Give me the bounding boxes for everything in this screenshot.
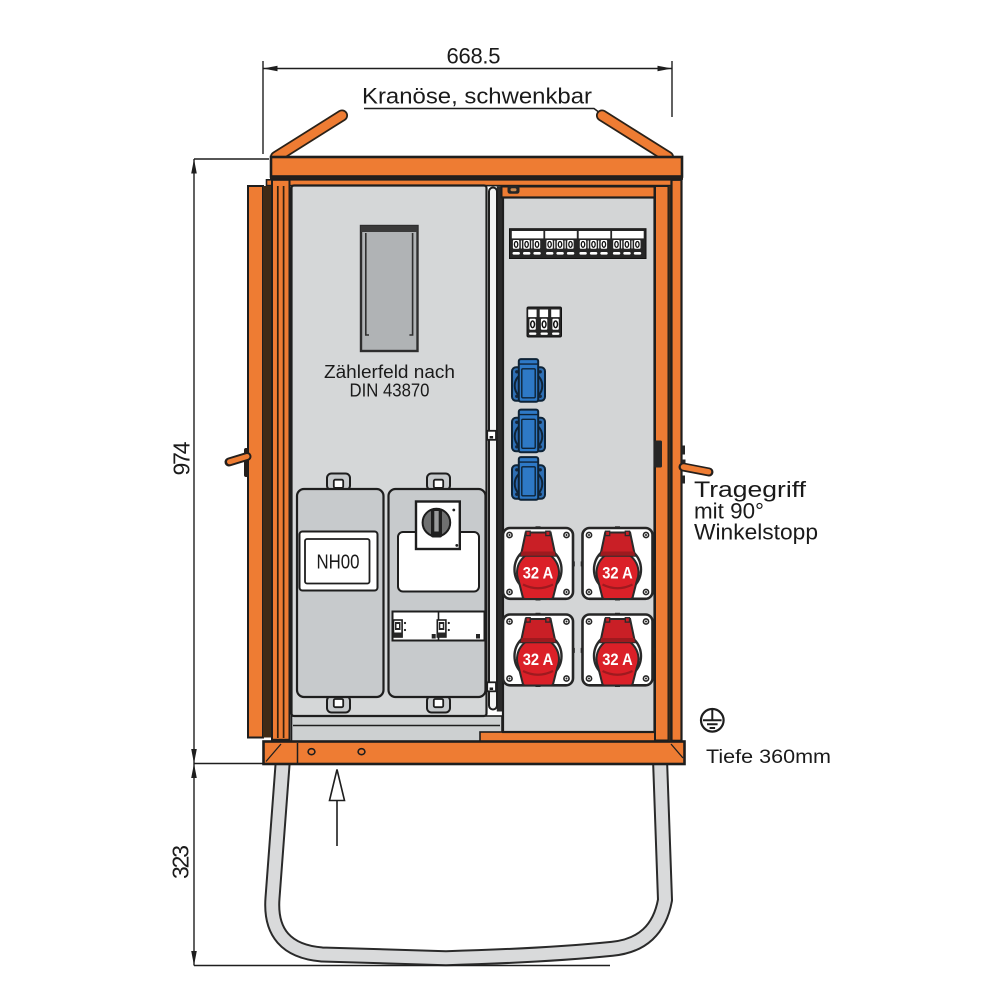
svg-text:Winkelstopp: Winkelstopp	[694, 520, 818, 545]
svg-text:323: 323	[168, 845, 194, 879]
svg-text:32 A: 32 A	[602, 650, 633, 669]
svg-text:DIN 43870: DIN 43870	[350, 380, 430, 401]
svg-text:NH00: NH00	[317, 552, 360, 574]
svg-text:Kranöse, schwenkbar: Kranöse, schwenkbar	[362, 84, 592, 109]
svg-text:32 A: 32 A	[523, 650, 554, 669]
svg-text:32 A: 32 A	[523, 564, 554, 583]
svg-text:Tiefe 360mm: Tiefe 360mm	[706, 747, 831, 768]
svg-text:668.5: 668.5	[447, 44, 501, 69]
svg-text:32 A: 32 A	[602, 564, 633, 583]
svg-text:974: 974	[169, 441, 195, 475]
